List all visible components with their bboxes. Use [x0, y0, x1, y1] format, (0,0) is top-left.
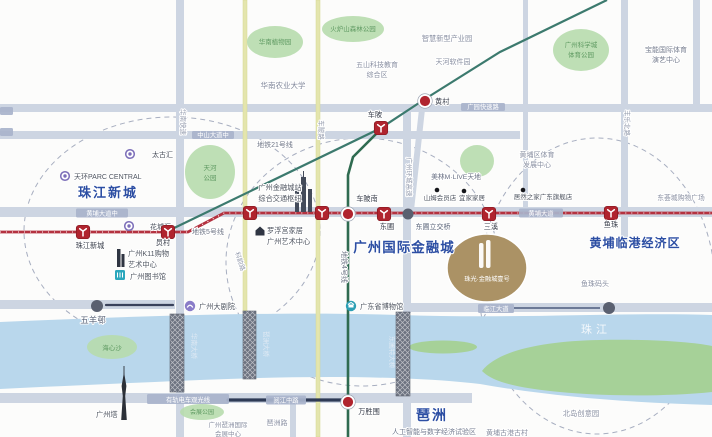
poi-huachenghui-dot	[127, 224, 130, 227]
label-wushan-tech-area: 综合区	[367, 70, 388, 79]
poi-opera-house-label: 广州大剧院	[199, 302, 235, 311]
station-huangcun-label: 黄村	[435, 97, 449, 106]
park-science-city-sports	[553, 29, 609, 71]
poi-k11-label: 艺术中心	[128, 260, 157, 269]
poi-taikoo-hui-dot	[128, 152, 131, 155]
park-tianhe-label: 公园	[204, 174, 217, 182]
road-huanan-expressway	[176, 0, 184, 316]
label-donghuicheng-mall: 东荟城购物广场	[657, 193, 705, 202]
huanan-bridge-label: 华南大桥	[190, 333, 199, 360]
station-yuzhu-label: 鱼珠	[604, 220, 619, 229]
dongpu-bridge	[396, 312, 410, 396]
station-chebei	[374, 121, 388, 135]
label-yuzhu-wharf: 鱼珠码头	[581, 279, 609, 288]
station-dongpu	[377, 207, 391, 221]
label-exhibition-center: 会展中心	[215, 429, 242, 437]
poi-ikea-label: 宜家家居	[459, 193, 486, 202]
vlabel-ring-expressway: 广州环城高速	[405, 158, 414, 198]
vlabel-chebei-road: 车陂路	[317, 120, 326, 140]
linjiang-avenue-dot	[603, 302, 615, 314]
badge-linjiang-avenue-label: 临江大道	[483, 304, 509, 313]
station-yuancun-label: 员村	[156, 238, 170, 247]
station-sanxi-label: 三溪	[484, 222, 498, 231]
huanan-bridge	[170, 314, 184, 392]
poi-guangzhou-library-label: 广州图书馆	[130, 272, 166, 281]
station-huangcun	[419, 95, 431, 107]
vlabel-fengle-north-road: 丰乐北路	[623, 110, 632, 137]
label-ai-digital-zone: 人工智能与数字经济试验区	[392, 427, 476, 436]
poi-louvre-home-label: 罗浮宫家居	[267, 226, 303, 235]
road-zhongshan-avenue-middle	[0, 131, 520, 139]
label-wushan-tech-area: 五山科技教育	[356, 60, 398, 69]
area-pazhou: 琶洲	[416, 407, 448, 423]
label-tianhe-software-park: 天河软件园	[436, 57, 471, 66]
park-science-city-sports-label: 广州科学城	[565, 40, 598, 49]
badge-huangpu-avenue-label: 黄埔大道	[528, 209, 554, 218]
poi-sams-club	[435, 188, 440, 193]
project-tower-icon	[486, 240, 491, 268]
badge-tram-line-label: 有轨电车观光线	[166, 395, 211, 404]
poi-easyhome	[521, 188, 526, 193]
wuyangcun-dot	[91, 300, 103, 312]
label-huangpu-sports-center: 黄埔区体育	[520, 150, 555, 159]
poi-guangdong-museum-label: 广东省博物馆	[360, 302, 403, 311]
poi-taikoo-hui-label: 太古汇	[152, 150, 173, 159]
park-tianhe-label: 天河	[204, 164, 218, 172]
label-baoneng-center: 演艺中心	[652, 55, 680, 64]
badge-zhongshan-avenue-middle-label: 中山大道中	[197, 130, 228, 139]
park-science-city-sports-label: 体育公园	[568, 50, 594, 59]
park-haixinsha-label: 海心沙	[102, 343, 122, 352]
station-chebeinan	[342, 208, 354, 220]
label-baoneng-center: 宝能国际体育	[645, 45, 687, 54]
label-huangpu-ancient-port: 黄埔古港古村	[486, 428, 528, 437]
poi-parc-central-label: 天环PARC CENTRAL	[74, 173, 142, 181]
badge-left-stub-2	[0, 128, 13, 136]
label-pearl-river: 珠江	[581, 322, 611, 336]
metro-line-5-label: 地铁5号线	[192, 227, 224, 236]
project-zhuguang-financial-city-no1-label: 珠光·金融城壹号	[464, 275, 509, 283]
badge-huangpu-avenue-middle-label: 黄埔大道中	[86, 209, 117, 218]
poi-financial-city-hub-label: 广州金融城站	[258, 183, 301, 192]
label-north-island-creative-park: 北岛创意园	[563, 409, 599, 418]
poi-k11-label: 广州K11购物	[128, 249, 169, 258]
station-zhujiang-new-town	[76, 225, 90, 239]
map-canvas: 华南大桥琶洲大桥东圃特大桥华南植物园火炉山森林公园广州科学城体育公园天河公园海心…	[0, 0, 712, 437]
dongpu-interchange-dot	[403, 209, 414, 220]
station-yuancun	[161, 225, 175, 239]
station-financial-city	[243, 206, 257, 220]
dongpu-interchange-dot-label: 东圃立交桥	[416, 222, 451, 231]
road-guangyuan-expressway	[0, 104, 712, 112]
park-exhibition-label: 会展公园	[190, 408, 214, 416]
badge-guangyuan-expressway-label: 广园快速路	[467, 102, 499, 111]
badge-yuejiang-middle-road-label: 阅江中路	[273, 396, 299, 405]
poi-parc-central-dot	[63, 174, 66, 177]
station-wanshengwei	[342, 396, 354, 408]
park-botanical-garden-label: 华南植物园	[259, 37, 292, 46]
station-yuzhu	[604, 206, 618, 220]
poi-louvre-home-label: 广州艺术中心	[267, 237, 310, 246]
metro-line-21-label: 地铁21号线	[257, 140, 293, 149]
label-smart-industry-park: 智慧新型产业园	[422, 34, 472, 43]
station-unnamed	[315, 206, 329, 220]
poi-ikea	[462, 189, 467, 194]
station-chebei-label: 车陂	[368, 110, 382, 119]
poi-guangzhou-library-icon	[115, 270, 125, 280]
label-exhibition-center: 广州琶洲国际	[209, 420, 249, 429]
station-chebeinan-label: 车陂南	[356, 194, 378, 203]
poi-opera-house-icon	[185, 301, 195, 311]
area-zhujiang-new-town: 珠江新城	[78, 185, 138, 200]
park-small-green	[460, 145, 494, 177]
label-huangpu-sports-center: 发展中心	[523, 160, 551, 169]
station-dongpu-label: 东圃	[380, 222, 394, 231]
project-zhuguang-financial-city-no1: 珠光·金融城壹号	[447, 234, 527, 302]
metro-line-4-label: 地铁4号线	[340, 251, 349, 283]
label-south-china-agri-univ: 华南农业大学	[261, 80, 306, 90]
station-sanxi	[482, 207, 496, 221]
poi-easyhome-label: 居然之家广东旗舰店	[514, 192, 573, 201]
island-sliver	[409, 341, 477, 354]
label-pazhou-road: 琶洲路	[267, 418, 288, 427]
poi-financial-city-hub-label: 综合交通枢纽	[258, 194, 301, 203]
dongpu-bridge-label: 东圃特大桥	[388, 336, 397, 369]
station-zhujiang-new-town-label: 珠江新城	[76, 241, 105, 250]
poi-sams-club-label: 山姆会员店	[424, 193, 457, 202]
badge-left-stub-1	[0, 107, 13, 115]
poi-canton-tower-label: 广州塔	[96, 410, 118, 419]
location-map: 华南大桥琶洲大桥东圃特大桥华南植物园火炉山森林公园广州科学城体育公园天河公园海心…	[0, 0, 712, 437]
park-tianhe	[185, 145, 235, 199]
pazhou-bridge-label: 琶洲大桥	[262, 331, 271, 358]
wuyangcun-dot-label: 五羊邨	[80, 315, 106, 325]
station-wanshengwei-label: 万胜围	[358, 407, 380, 416]
poi-guangdong-museum-icon	[346, 301, 356, 311]
area-intl-financial-city: 广州国际金融城	[353, 239, 455, 255]
area-huangpu-port-zone: 黄埔临港经济区	[589, 235, 680, 250]
park-huolushan-forest-label: 火炉山森林公园	[330, 24, 376, 33]
pazhou-bridge	[243, 311, 256, 379]
road-dashadi	[523, 0, 528, 210]
label-meilin-mlive: 美林M·LIVE天地	[431, 172, 481, 181]
road-right-edge	[693, 0, 700, 110]
road-pazhou-vertical	[290, 403, 296, 437]
project-tower-icon	[479, 243, 484, 268]
vlabel-huanan-expressway: 华南快速	[179, 109, 188, 136]
